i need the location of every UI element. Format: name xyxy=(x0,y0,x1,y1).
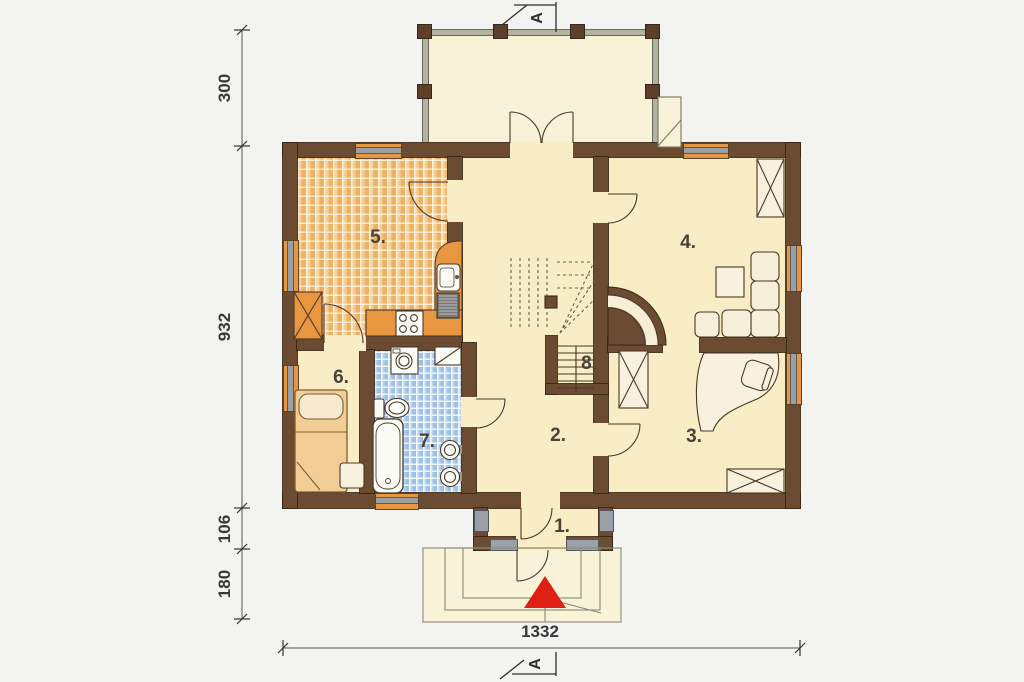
dim-label-300: 300 xyxy=(215,74,235,102)
plan-details-layer xyxy=(0,0,1024,682)
fridge xyxy=(437,293,459,318)
stove xyxy=(396,311,423,336)
entrance-steps xyxy=(423,548,621,622)
coffee-table xyxy=(716,267,744,297)
dimension-ticks xyxy=(234,25,805,656)
room-label-4: 4. xyxy=(680,232,696,254)
dim-label-932: 932 xyxy=(215,313,235,341)
stair-newel-post xyxy=(545,296,557,308)
dim-label-1332: 1332 xyxy=(521,622,559,642)
washing-machine xyxy=(391,347,418,374)
room-label-7: 7. xyxy=(419,431,435,453)
room-label-1: 1. xyxy=(554,516,570,538)
nightstand xyxy=(340,463,364,488)
wardrobe xyxy=(727,469,784,493)
room-label-2: 2. xyxy=(550,425,566,447)
toilet xyxy=(374,399,409,419)
floor-plan: 1. 2. 3. 4. 5. 6. 7. 8. 300 932 106 180 … xyxy=(0,0,1024,682)
dimension-lines xyxy=(242,30,800,648)
dim-label-106: 106 xyxy=(215,515,235,543)
terrace-side-steps xyxy=(658,97,681,147)
bathroom-shelf xyxy=(435,347,461,365)
arched-passage xyxy=(608,287,666,345)
vestibule-door-arc xyxy=(521,508,552,539)
room-label-5: 5. xyxy=(370,227,386,249)
section-letter-bottom: A xyxy=(527,658,545,670)
section-letter-top: A xyxy=(529,12,547,24)
room-label-8: 8. xyxy=(581,353,597,375)
room-label-3: 3. xyxy=(686,426,702,448)
kitchen-sink xyxy=(437,264,460,291)
entrance-arrow xyxy=(524,576,566,608)
bed xyxy=(295,390,347,492)
washbasin xyxy=(441,468,463,487)
bathtub xyxy=(373,419,403,493)
washbasin xyxy=(441,441,463,460)
room-label-6: 6. xyxy=(333,367,349,389)
kitchen-chimney-flue xyxy=(294,292,322,339)
terrace-french-door xyxy=(510,112,573,143)
kitchen-room6-door-arc xyxy=(324,304,363,343)
room4-chimney-flue xyxy=(757,159,784,217)
room3-door-arc xyxy=(608,424,640,456)
bathroom-door-arc xyxy=(476,399,505,428)
dim-label-180: 180 xyxy=(215,570,235,598)
kitchen-door-arc xyxy=(409,182,448,221)
room3-chimney-flue xyxy=(619,351,648,408)
front-door-arc xyxy=(517,550,548,581)
room4-door-arc xyxy=(608,194,637,223)
